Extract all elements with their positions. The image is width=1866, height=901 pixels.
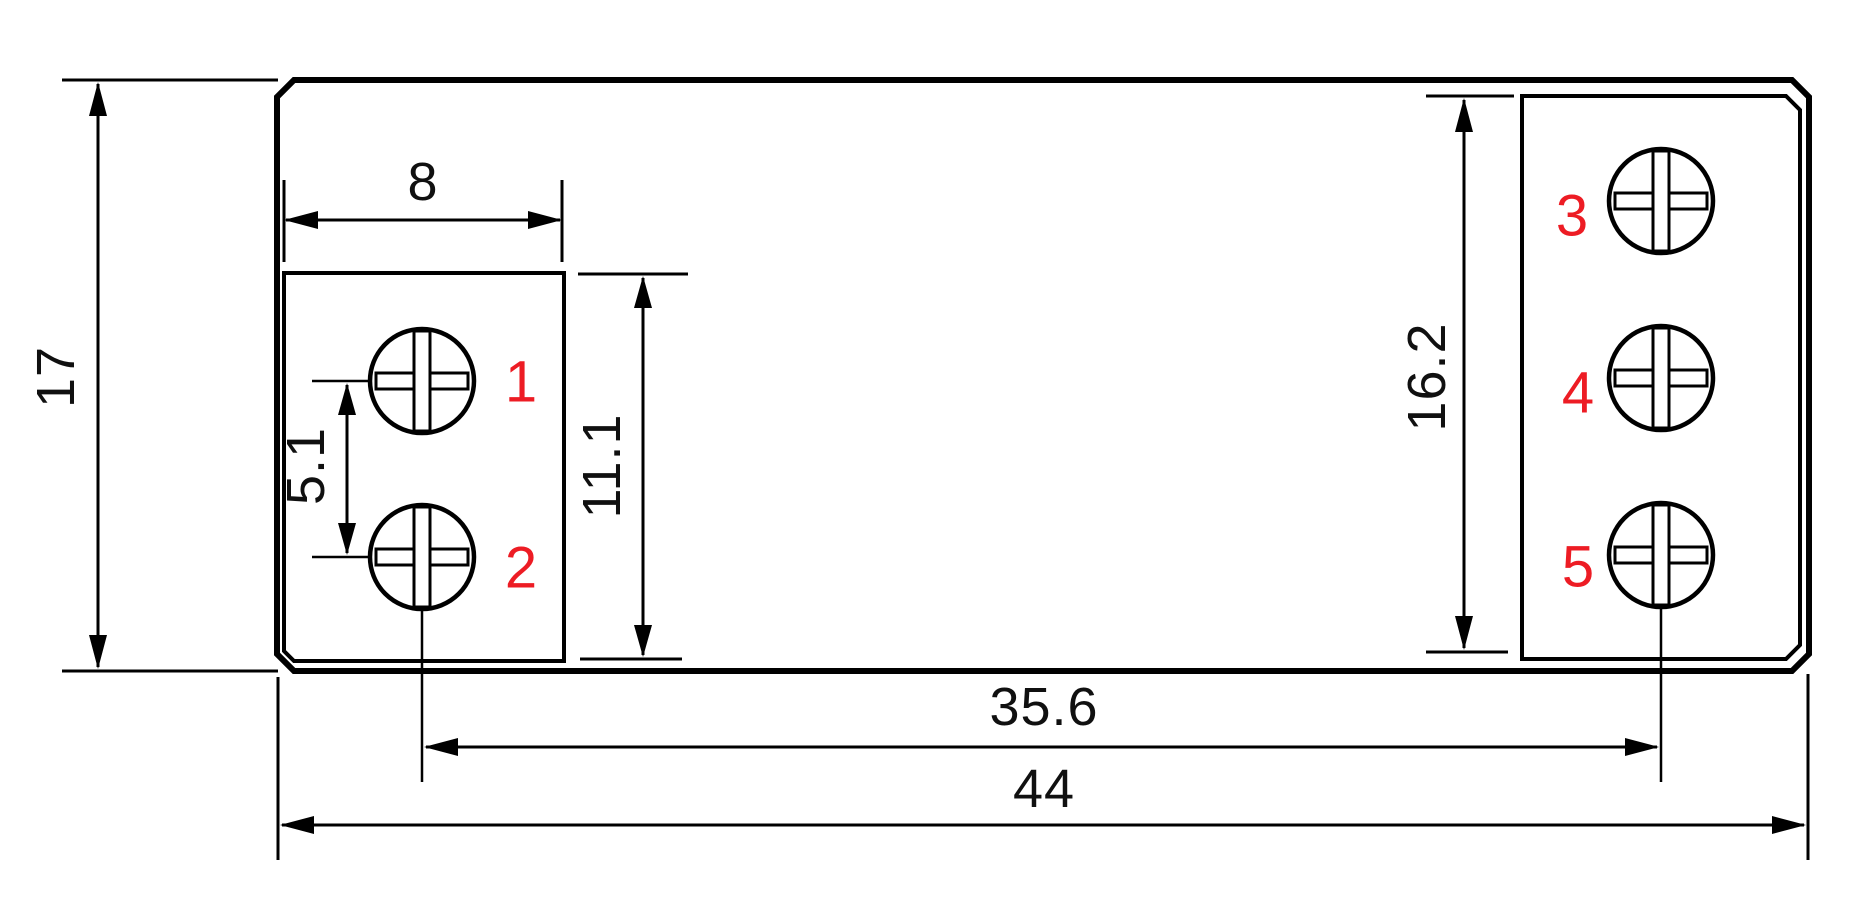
- screw-5-slot-vertical: [1653, 505, 1669, 605]
- dim-body-height-arrow-up: [89, 82, 107, 116]
- dim-screw-pitch-label: 5.1: [276, 427, 336, 505]
- dim-left-block-height-label: 11.1: [572, 413, 632, 518]
- dim-body-width-arrow-left: [280, 816, 314, 834]
- dimension-drawing: 17 8 5.1 11.1: [0, 0, 1866, 901]
- dim-left-block-width-label: 8: [407, 152, 438, 212]
- screw-1-slot-vertical: [414, 331, 430, 431]
- dim-terminal-span: 35.6: [424, 677, 1659, 756]
- terminal-screw-4: [1609, 326, 1713, 430]
- dim-terminal-span-arrow-left: [424, 738, 458, 756]
- terminal-screw-5: [1609, 503, 1713, 607]
- dim-body-height-label: 17: [26, 346, 86, 408]
- dim-body-height: 17: [26, 80, 278, 671]
- screw-4-slot-vertical: [1653, 328, 1669, 428]
- terminal-label-5: 5: [1562, 535, 1594, 600]
- dim-right-block-height-label: 16.2: [1397, 322, 1457, 431]
- terminal-screw-3: [1609, 149, 1713, 253]
- dim-body-width-label: 44: [1013, 759, 1075, 819]
- terminal-label-2: 2: [505, 536, 537, 601]
- screw-3-slot-vertical: [1653, 151, 1669, 251]
- screw-2-slot-vertical: [414, 507, 430, 607]
- terminal-label-4: 4: [1562, 361, 1594, 426]
- terminal-screw-2: [370, 505, 474, 609]
- dim-terminal-span-label: 35.6: [989, 677, 1098, 737]
- terminal-label-1: 1: [505, 350, 537, 415]
- dim-body-width-arrow-right: [1772, 816, 1806, 834]
- dim-terminal-span-arrow-right: [1625, 738, 1659, 756]
- terminal-label-3: 3: [1556, 184, 1588, 249]
- dim-body-height-arrow-down: [89, 635, 107, 669]
- terminal-screw-1: [370, 329, 474, 433]
- drawing-canvas: 17 8 5.1 11.1: [0, 0, 1866, 901]
